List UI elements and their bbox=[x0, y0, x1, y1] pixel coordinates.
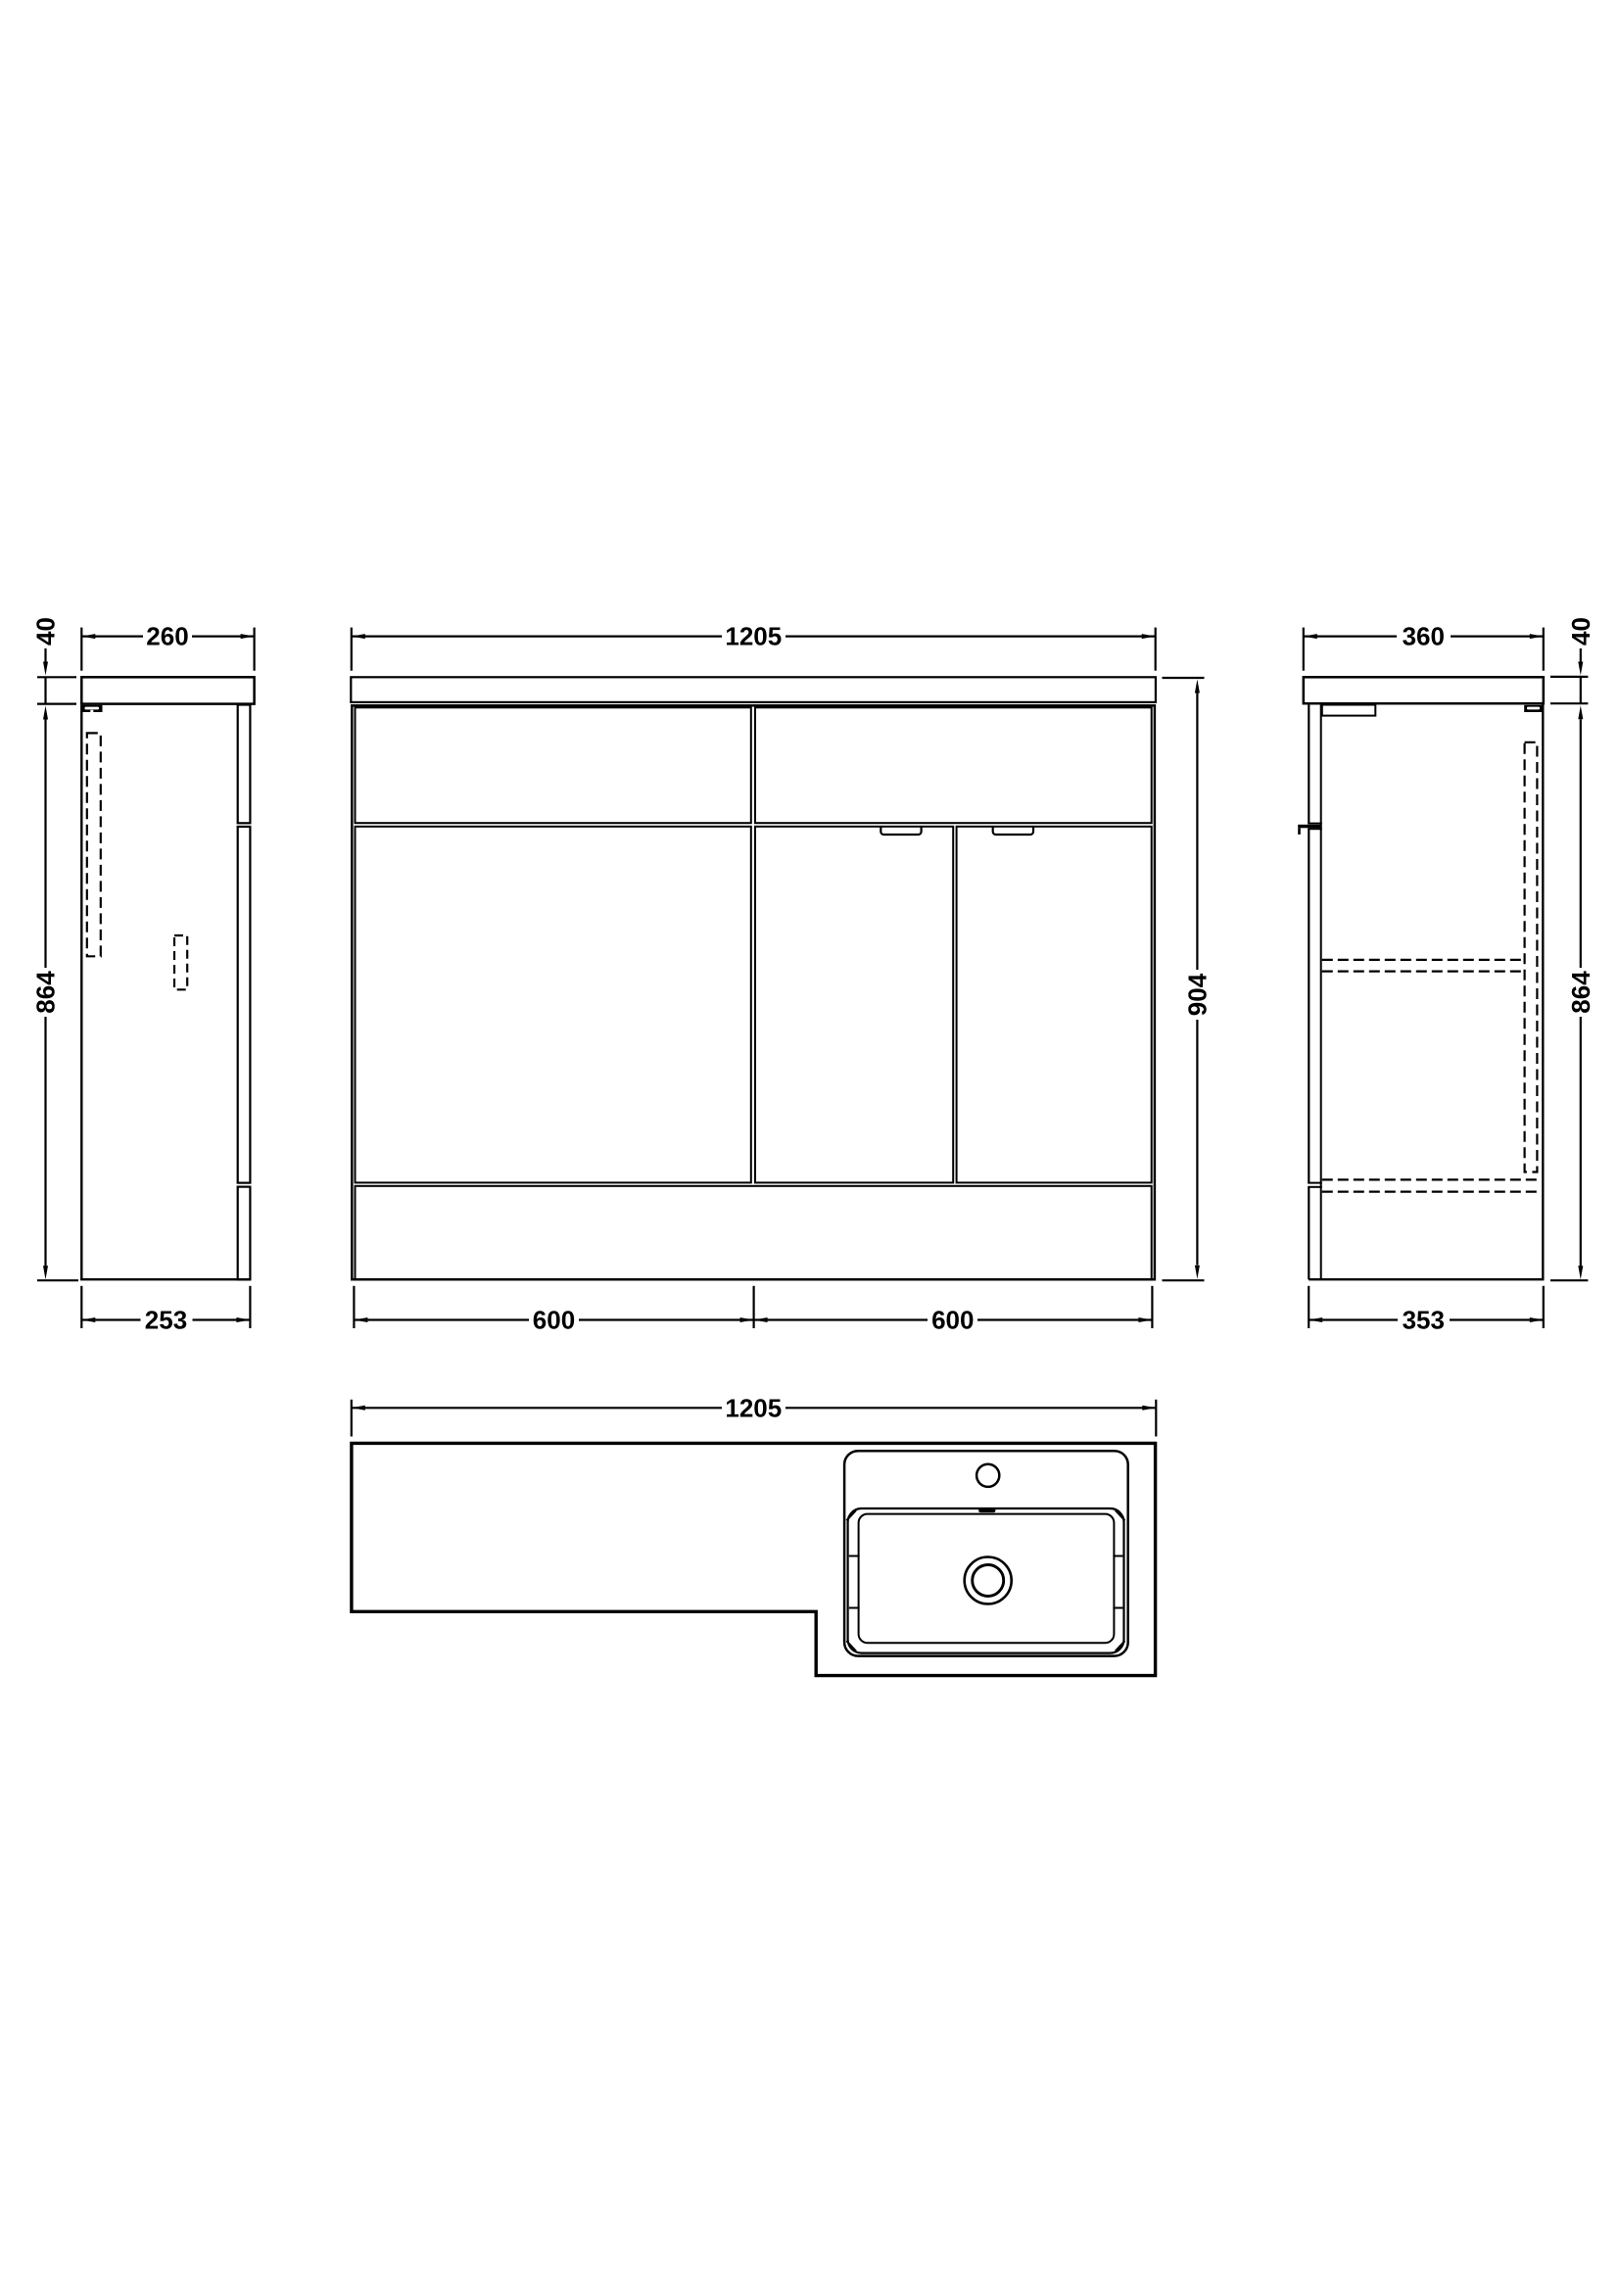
svg-text:864: 864 bbox=[1566, 971, 1595, 1014]
svg-text:360: 360 bbox=[1403, 622, 1445, 651]
svg-text:864: 864 bbox=[31, 971, 61, 1014]
svg-text:1205: 1205 bbox=[725, 622, 782, 651]
svg-text:40: 40 bbox=[31, 617, 61, 646]
svg-text:40: 40 bbox=[1566, 617, 1595, 646]
svg-text:353: 353 bbox=[1403, 1306, 1445, 1335]
svg-text:260: 260 bbox=[146, 622, 188, 651]
svg-text:600: 600 bbox=[931, 1306, 974, 1335]
svg-text:600: 600 bbox=[533, 1306, 575, 1335]
svg-text:253: 253 bbox=[145, 1306, 187, 1335]
svg-text:904: 904 bbox=[1182, 973, 1212, 1016]
svg-text:1205: 1205 bbox=[725, 1393, 782, 1422]
